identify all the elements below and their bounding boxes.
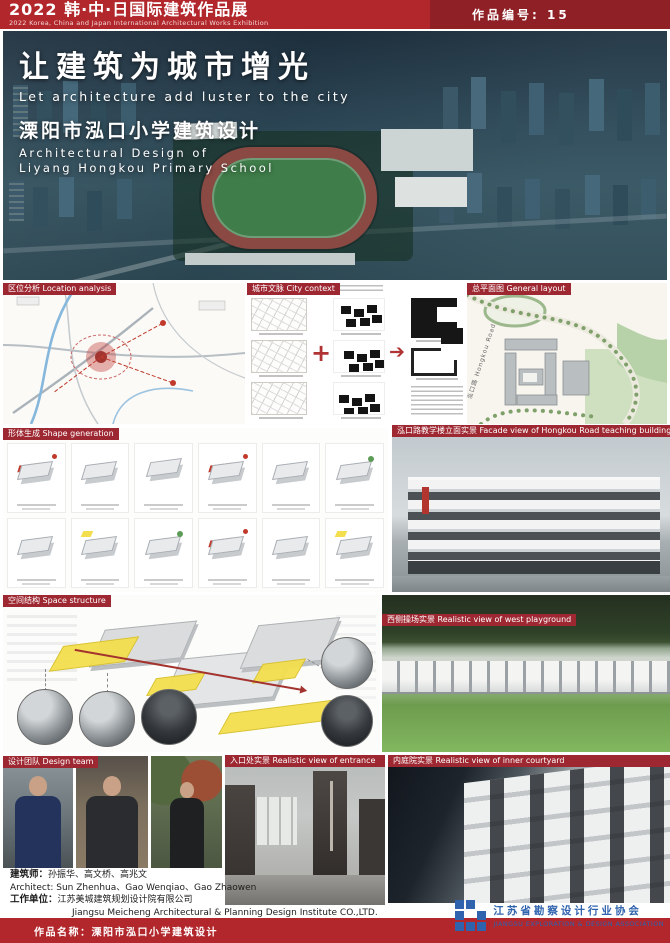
hero-text-block: 让建筑为城市增光 Let architecture add luster to … xyxy=(19,42,350,176)
building-base xyxy=(408,561,660,574)
association-name-cn: 江苏省勘察设计行业协会 xyxy=(493,903,664,918)
shape-diagram-grid xyxy=(7,443,384,588)
shape-tile xyxy=(71,518,130,588)
company-line-cn: 工作单位：江苏美城建筑规划设计院有限公司 xyxy=(10,894,382,907)
work-name: 作品名称：溧阳市泓口小学建筑设计 xyxy=(34,923,218,938)
exhibition-poster: 2022 韩·中·日国际建筑作品展 2022 Korea, China and … xyxy=(0,0,670,943)
location-analysis-panel: 区位分析 Location analysis xyxy=(3,283,245,424)
teaching-building xyxy=(408,477,660,561)
result-massing-diagram xyxy=(411,298,463,342)
photo-inset-circle xyxy=(79,691,135,747)
context-map-thumb xyxy=(251,298,311,335)
architect-line-en: Architect: Sun Zhenhua、Gao Wenqiao、Gao Z… xyxy=(10,882,382,895)
company-label: 工作单位： xyxy=(10,894,58,905)
plus-icon: + xyxy=(311,339,331,367)
work-number-badge: 作品编号: 15 xyxy=(430,0,670,29)
header-bar: 2022 韩·中·日国际建筑作品展 2022 Korea, China and … xyxy=(0,0,670,29)
location-map xyxy=(3,283,245,424)
context-paragraph xyxy=(411,386,463,416)
school-building xyxy=(381,129,473,171)
result-outline-diagram xyxy=(411,348,463,380)
architect-portrait xyxy=(151,756,222,868)
photo-inset-circle xyxy=(321,695,373,747)
photo-inset-circle xyxy=(321,637,373,689)
project-title-en-1: Architectural Design of xyxy=(19,146,350,161)
location-analysis-label: 区位分析 Location analysis xyxy=(3,283,116,295)
courtyard-photo: 内庭院实景 Realistic view of inner courtyard xyxy=(388,755,670,903)
city-context-label: 城市文脉 City context xyxy=(247,283,340,295)
courtyard-facade xyxy=(464,755,670,903)
project-title-cn: 溧阳市泓口小学建筑设计 xyxy=(19,116,350,143)
shape-tile xyxy=(134,518,193,588)
callout-line xyxy=(107,673,108,693)
shape-tile xyxy=(198,443,257,513)
entrance-label: 入口处实景 Realistic view of entrance xyxy=(225,755,385,767)
architect-label: 建筑师： xyxy=(10,869,48,880)
hero-title-en: Let architecture add luster to the city xyxy=(19,89,350,104)
architect-portrait xyxy=(76,756,148,868)
association-names: 江苏省勘察设计行业协会 JIANGSU EXPLORATION & DESIGN… xyxy=(493,903,664,928)
courtyard-label: 内庭院实景 Realistic view of inner courtyard xyxy=(388,755,670,767)
general-layout-label: 总平面图 General layout xyxy=(467,283,571,295)
shape-tile xyxy=(262,518,321,588)
project-title-en-2: Liyang Hongkou Primary School xyxy=(19,161,350,176)
shape-tile xyxy=(7,443,66,513)
callout-line xyxy=(45,669,46,691)
association-name-en: JIANGSU EXPLORATION & DESIGN ASSOCIATION xyxy=(493,920,664,928)
hero-title-cn: 让建筑为城市增光 xyxy=(19,42,350,86)
credits-block: 建筑师：孙振华、高文桥、高兆文 Architect: Sun Zhenhua、G… xyxy=(10,869,382,919)
shape-tile xyxy=(198,518,257,588)
shape-tile xyxy=(134,443,193,513)
school-building xyxy=(395,177,467,207)
architect-portrait xyxy=(3,756,73,868)
shape-tile xyxy=(71,443,130,513)
site-plan xyxy=(467,283,667,424)
figure-ground-thumb xyxy=(333,382,389,419)
space-structure-label: 空间结构 Space structure xyxy=(3,595,111,607)
figure-ground-thumb xyxy=(333,340,389,377)
architect-names: 孙振华、高文桥、高兆文 xyxy=(48,870,147,880)
shape-tile xyxy=(7,518,66,588)
shape-generation-label: 形体生成 Shape generation xyxy=(3,428,119,440)
architect-line-cn: 建筑师：孙振华、高文桥、高兆文 xyxy=(10,869,382,882)
playground-label: 西侧操场实景 Realistic view of west playground xyxy=(382,614,576,626)
context-result-column xyxy=(411,298,463,416)
design-team-panel: 设计团队 Design team xyxy=(3,756,222,868)
road-foreground xyxy=(392,576,670,592)
entrance-tower xyxy=(313,771,347,885)
photo-inset-circle xyxy=(17,689,73,745)
facade-photo: 泓口路教学楼立面实景 Facade view of Hongkou Road t… xyxy=(392,425,670,592)
space-structure-panel: 空间结构 Space structure xyxy=(3,595,380,752)
header-titles: 2022 韩·中·日国际建筑作品展 2022 Korea, China and … xyxy=(0,2,268,27)
facade-label: 泓口路教学楼立面实景 Facade view of Hongkou Road t… xyxy=(392,425,670,437)
association-logo-icon xyxy=(454,899,486,931)
context-map-column xyxy=(251,298,311,419)
school-building xyxy=(185,253,355,265)
exhibition-subtitle: 2022 Korea, China and Japan Internationa… xyxy=(9,20,268,27)
school-buildings-row xyxy=(382,661,670,694)
exhibition-title: 2022 韩·中·日国际建筑作品展 xyxy=(9,2,268,18)
playground-photo: 西侧操场实景 Realistic view of west playground xyxy=(382,595,670,752)
shape-generation-panel: 形体生成 Shape generation xyxy=(3,428,388,592)
city-context-panel: 城市文脉 City context + ➔ xyxy=(247,283,465,424)
context-map-thumb xyxy=(251,382,311,419)
general-layout-panel: 总平面图 General layout 泓口路 Hongkou Road xyxy=(467,283,667,424)
company-name: 江苏美城建筑规划设计院有限公司 xyxy=(58,895,193,905)
company-line-en: Jiangsu Meicheng Architectural & Plannin… xyxy=(10,907,382,920)
context-map-thumb xyxy=(251,340,311,377)
association-block: 江苏省勘察设计行业协会 JIANGSU EXPLORATION & DESIGN… xyxy=(454,899,664,931)
shape-tile xyxy=(262,443,321,513)
figure-ground-column xyxy=(333,298,389,419)
shape-tile xyxy=(325,518,384,588)
figure-ground-thumb xyxy=(333,298,389,335)
arrow-right-icon: ➔ xyxy=(389,341,405,363)
shape-tile xyxy=(325,443,384,513)
red-banner xyxy=(422,487,429,514)
photo-inset-circle xyxy=(141,689,197,745)
hero-aerial-photo: 让建筑为城市增光 Let architecture add luster to … xyxy=(3,31,667,280)
design-team-label: 设计团队 Design team xyxy=(3,756,98,768)
city-towers-low xyxy=(9,181,24,221)
